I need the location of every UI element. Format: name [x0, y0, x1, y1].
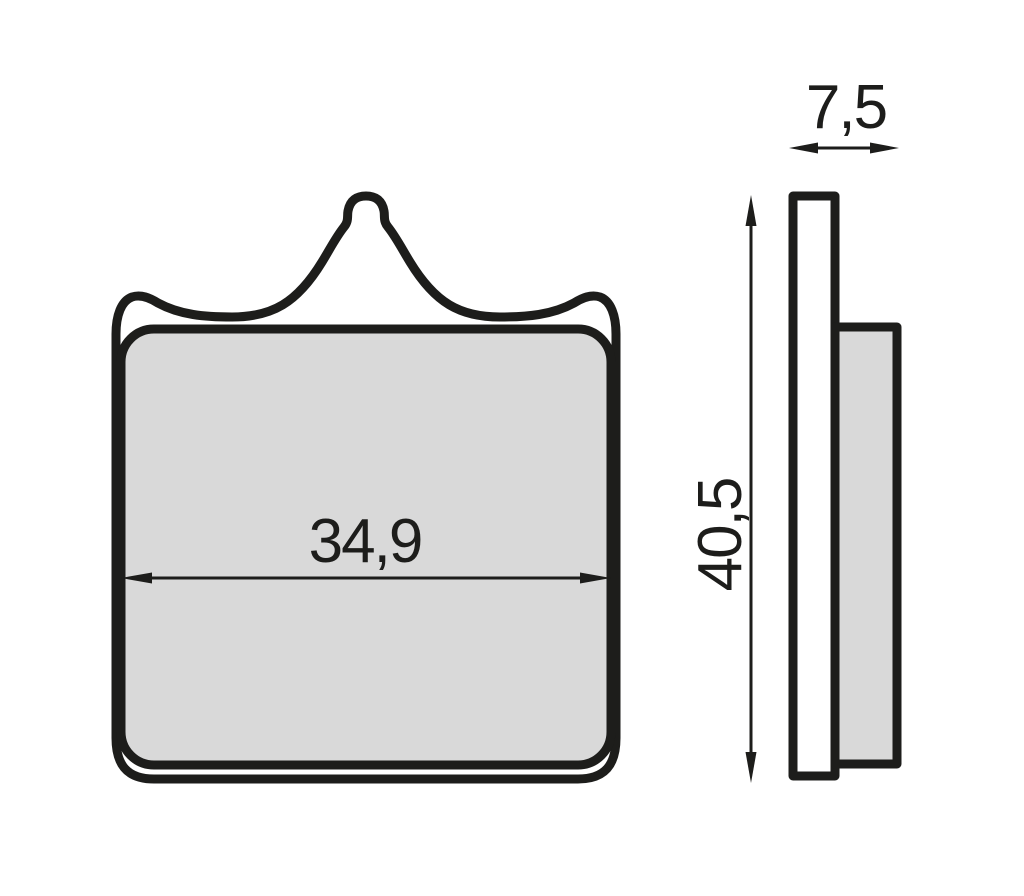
front-view: 34,9: [116, 196, 616, 779]
side-friction-pad: [835, 327, 897, 764]
side-backing-plate: [793, 196, 835, 776]
thickness-dimension: 7,5: [789, 73, 899, 154]
brake-pad-technical-drawing: 34,9 7,5 40,5: [0, 0, 1024, 896]
side-view: 7,5 40,5: [686, 73, 899, 783]
width-dimension-label: 34,9: [309, 507, 422, 576]
thickness-dimension-label: 7,5: [806, 73, 886, 142]
height-dimension: 40,5: [686, 195, 757, 783]
height-arrowhead-bottom-icon: [746, 752, 757, 783]
height-arrowhead-top-icon: [746, 195, 757, 226]
drawing-svg: 34,9 7,5 40,5: [0, 0, 1024, 896]
thickness-arrowhead-left-icon: [789, 143, 818, 154]
thickness-arrowhead-right-icon: [870, 143, 899, 154]
height-dimension-label: 40,5: [686, 479, 755, 592]
